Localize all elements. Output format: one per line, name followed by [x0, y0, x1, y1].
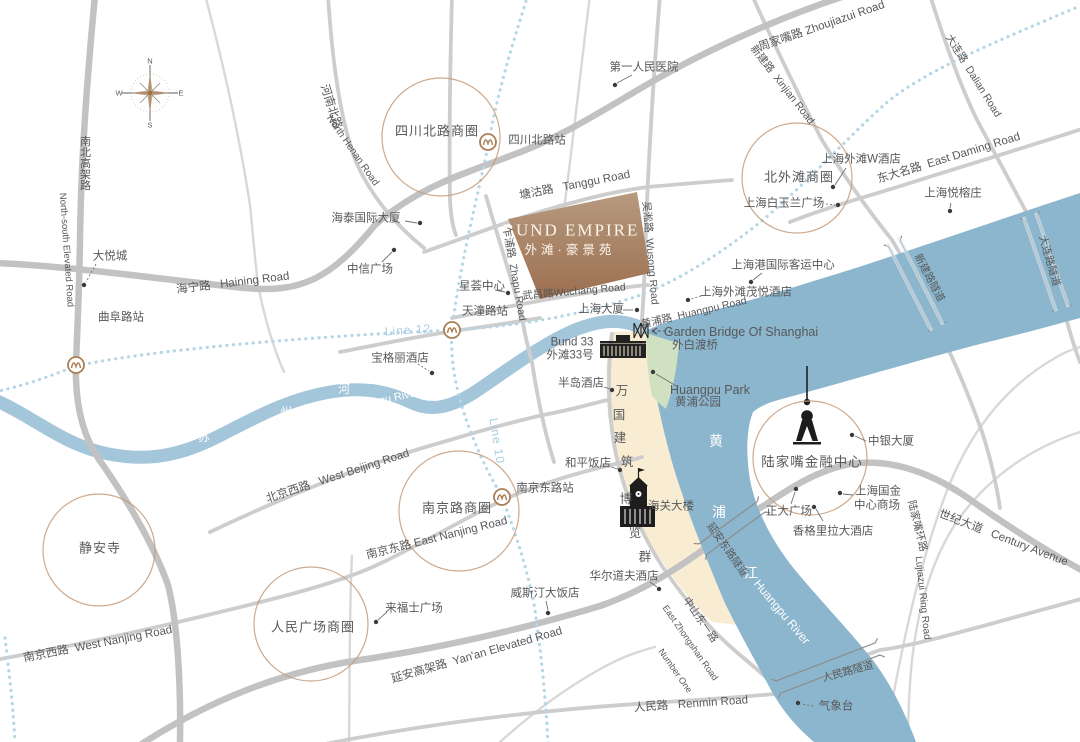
label-garden-bridge-en: Garden Bridge Of Shanghai	[664, 326, 818, 339]
label-bund-33-en: Bund 33	[551, 337, 594, 349]
label-qufu-road-station: 曲阜路站	[98, 312, 144, 324]
bund-empire-location-map: 第一人民医院四川北路商圈四川北路站河南北路North Henan Road南北高…	[0, 0, 1080, 742]
map-labels: 第一人民医院四川北路商圈四川北路站河南北路North Henan Road南北高…	[0, 0, 1080, 742]
label-magnolia-plaza: 上海白玉兰广场	[744, 198, 825, 210]
label-east-nanjing-road-station: 南京东路站	[516, 483, 574, 495]
label-dalian-road-tunnel: 大连路隧道	[1037, 234, 1062, 287]
label-bund-empire-en: BUND EMPIRE	[503, 222, 640, 239]
label-haining-road: 海宁路 Haining Road	[176, 271, 290, 296]
label-zhoujiazui-road: 周家嘴路 Zhoujiazui Road	[758, 0, 887, 54]
label-huangpu-river-en: Huangpu River	[752, 577, 813, 646]
label-lujiazui-ring-road-en: Lujiazui Ring Road	[913, 556, 932, 641]
label-xinghui-center: 星荟中心	[459, 281, 505, 293]
label-bund-strip-char-6: 览	[629, 527, 642, 540]
label-huangpu-river-char-1: 黄	[709, 434, 723, 448]
label-first-peoples-hospital: 第一人民医院	[610, 62, 679, 74]
label-waldorf-astoria: 华尔道夫酒店	[590, 571, 659, 583]
label-wusong-road: 吴淞路 Wusong Road	[640, 201, 659, 305]
label-metro-line-10: Line 10	[487, 417, 506, 465]
label-tanggu-road: 塘沽路 Tanggu Road	[519, 170, 632, 203]
label-bund-33-zh: 外滩33号	[546, 350, 593, 362]
label-north-bund-district: 北外滩商圈	[764, 171, 834, 184]
label-tiantong-road-station: 天潼路站	[462, 306, 508, 318]
label-peace-hotel: 和平饭店	[565, 458, 611, 470]
label-huangpu-river-char-2: 浦	[712, 505, 726, 519]
label-customs-house: 海关大楼	[648, 501, 694, 513]
label-west-beijing-road: 北京西路 West Beijing Road	[265, 448, 411, 505]
label-compass-w: W	[115, 89, 122, 97]
label-north-south-elevated-en: North-south Elevated Road	[57, 193, 74, 308]
label-wuchang-road: 武昌路Wuchang Road	[522, 282, 626, 301]
label-westin-hotel: 威斯汀大饭店	[511, 588, 580, 600]
label-renmin-road: 人民路 Renmin Road	[634, 695, 749, 714]
label-suzhou-river-char-1: 苏	[198, 431, 210, 443]
label-raffles-city: 来福士广场	[385, 603, 443, 615]
label-garden-bridge-zh: 外白渡桥	[672, 340, 718, 352]
label-suzhou-river-char-2: 州	[280, 406, 292, 418]
label-haitai-international-building: 海泰国际大厦	[332, 213, 401, 225]
label-huangpu-park-zh: 黄浦公园	[675, 397, 721, 409]
label-metro-line-12: Line 12	[384, 322, 431, 337]
label-hyatt-on-the-bund: 上海外滩茂悦酒店	[700, 287, 792, 299]
label-super-brand-mall: 正大广场	[766, 506, 812, 518]
label-yanan-elevated-road: 延安高架路 Yan'an Elevated Road	[390, 626, 563, 686]
label-joy-city: 大悦城	[93, 251, 128, 263]
label-compass-n: N	[147, 57, 152, 65]
label-sichuan-north-road-station: 四川北路站	[508, 135, 566, 147]
label-weather-observatory: 气象台	[819, 701, 854, 713]
label-huangpu-river-char-3: 江	[744, 566, 758, 580]
label-broadway-mansions: 上海大厦	[578, 304, 624, 316]
label-compass-e: E	[178, 89, 183, 97]
label-bund-strip-char-5: 博	[620, 493, 633, 506]
label-north-south-elevated-zh: 南北高架路	[79, 136, 90, 191]
label-dalian-road: 大连路 Dalian Road	[943, 33, 1002, 119]
label-century-avenue: 世纪大道 Century Avenue	[937, 509, 1069, 569]
label-east-nanjing-road: 南京东路 East Nanjing Road	[365, 516, 509, 562]
label-bund-strip-char-3: 建	[614, 432, 627, 445]
label-nanjing-road-district: 南京路商圈	[422, 502, 492, 515]
label-shanghai-ifc-mall-line1: 上海国金	[855, 486, 901, 498]
label-suzhou-river-char-3: 河	[338, 383, 350, 395]
label-bund-strip-char-7: 群	[639, 551, 652, 564]
label-xinjian-road-tunnel: 新建路隧道	[912, 252, 946, 303]
label-lujiazui-ring-road-zh: 陆家嘴环路	[906, 499, 929, 552]
label-bulgari-hotel: 宝格丽酒店	[371, 353, 429, 365]
label-peninsula-hotel: 半岛酒店	[558, 378, 604, 390]
label-lujiazui-financial-center: 陆家嘴金融中心	[761, 455, 863, 469]
label-north-henan-road-en: North Henan Road	[324, 114, 380, 188]
label-bund-strip-char-4: 筑	[621, 456, 634, 469]
label-w-hotel: 上海外滩W酒店	[821, 154, 901, 166]
label-jingan-temple: 静安寺	[79, 542, 121, 555]
label-peoples-square-district: 人民广场商圈	[271, 621, 355, 634]
label-bund-strip-char-2: 国	[613, 409, 626, 422]
label-suzhou-river-en: Suzhou River	[354, 388, 421, 412]
label-huangpu-park-en: Huangpu Park	[670, 384, 750, 397]
label-bund-strip-char-1: 万	[616, 385, 629, 398]
label-west-nanjing-road: 南京西路 West Nanjing Road	[23, 625, 174, 665]
label-bank-of-china-tower: 中银大厦	[868, 436, 914, 448]
label-shanghai-ifc-mall-line2: 中心商场	[854, 500, 900, 512]
label-renmin-road-tunnel: 人民路隧道	[821, 660, 874, 684]
label-citic-plaza: 中信广场	[347, 264, 393, 276]
label-shangri-la-hotel: 香格里拉大酒店	[793, 526, 874, 538]
label-xinjian-road: 新建路 Xinjian Road	[748, 44, 816, 127]
label-banyan-tree-shanghai: 上海悦榕庄	[924, 188, 982, 200]
label-bund-empire-zh: 外滩·豪景苑	[525, 244, 616, 257]
label-sichuan-north-road-district: 四川北路商圈	[395, 125, 479, 138]
label-yanan-east-road-tunnel: 延安东路隧道	[705, 521, 750, 579]
label-port-international-cruise-terminal: 上海港国际客运中心	[731, 260, 835, 272]
label-compass-s: S	[147, 121, 152, 129]
label-east-zhongshan-road-number-one: Number One	[657, 647, 694, 694]
